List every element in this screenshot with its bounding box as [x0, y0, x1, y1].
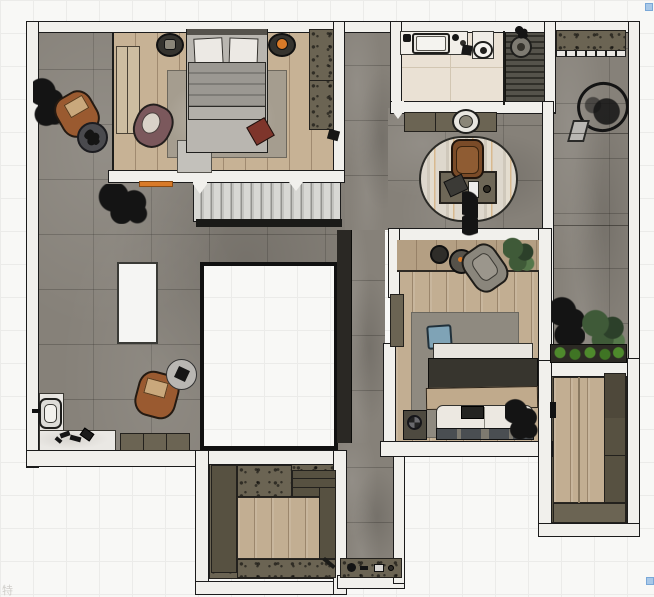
flower-planter	[550, 344, 627, 363]
counter-item-1	[403, 34, 411, 42]
terrace-shrub-dark-icon	[552, 293, 585, 351]
void-opening	[200, 262, 338, 450]
wall-bedroom2-left-lower	[383, 343, 396, 457]
wall-bottom-left	[26, 450, 209, 467]
selection-handle-top[interactable]	[645, 3, 653, 11]
counter-item-b	[374, 564, 384, 572]
terrace-seam-2	[554, 225, 628, 226]
study-plant-icon	[462, 186, 478, 240]
toilet-valve	[32, 409, 40, 413]
closet-top-section	[237, 465, 292, 497]
laundry-door-mark	[550, 402, 556, 418]
staircase	[193, 182, 341, 222]
closet-right-column	[319, 487, 336, 559]
closet-left-column	[211, 465, 237, 573]
bedroom2-plant-icon	[503, 235, 535, 273]
wall-laundry-bottom	[538, 523, 640, 537]
watermark-text: 特	[2, 582, 13, 597]
hallway-floor-lower	[340, 443, 395, 577]
wall-closet-left	[195, 450, 209, 595]
living-sideboard	[120, 433, 190, 451]
wall-shower-right	[544, 21, 556, 113]
lamp-left-icon	[164, 39, 176, 50]
master-wardrobe-divider	[127, 47, 128, 133]
sink-drain	[480, 47, 487, 54]
side-table-plant-icon	[84, 129, 101, 146]
master-duvet	[188, 62, 266, 108]
bathtub-inner	[416, 36, 446, 51]
round-table-small	[430, 245, 449, 264]
wall-closet-bottom	[195, 581, 347, 595]
wall-master-right	[333, 21, 345, 177]
floor-plan-canvas: 特	[0, 0, 654, 597]
study-sideboard	[404, 112, 497, 132]
wall-bedroom2-bottom	[380, 441, 553, 457]
wall-closet-top	[195, 450, 347, 465]
bed2-duvet-dark	[428, 358, 538, 390]
bed2-tray	[461, 406, 484, 419]
round-basin-bowl	[459, 115, 473, 128]
closet-floor-inlay	[237, 497, 320, 559]
kettle-icon	[347, 563, 356, 572]
shower-head-center	[517, 43, 525, 51]
counter-item-c	[388, 565, 394, 571]
bedroom2-plant-2-icon	[505, 397, 539, 442]
kitchen-island	[117, 262, 158, 344]
master-duvet-fold	[188, 106, 266, 120]
selection-handle-bottom[interactable]	[646, 577, 654, 585]
closet-bottom-row	[237, 559, 336, 578]
terrace-seam-1	[554, 133, 628, 134]
hallway-tall-cabinet	[337, 230, 352, 443]
master-closet-divider	[310, 80, 333, 81]
bedroom2-wardrobe	[390, 294, 404, 347]
laundry-floor-divider	[578, 377, 580, 503]
desk-bowl	[483, 185, 491, 193]
fan-icon	[407, 415, 422, 430]
sink-faucet-icon	[461, 44, 473, 56]
laundry-cabinet-row	[553, 503, 626, 523]
wall-right-outer	[628, 21, 640, 378]
wall-laundry-left	[538, 360, 552, 537]
lamp-right-icon	[276, 38, 288, 50]
laundry-cabinet-speckled	[605, 374, 625, 418]
laundry-cabinet-line	[605, 455, 625, 456]
counter-item-a	[360, 566, 368, 570]
counter-item-2	[452, 34, 459, 41]
staircase-shadow	[196, 219, 342, 227]
wall-laundry-right	[627, 358, 640, 537]
shower-fixture-icon	[515, 26, 529, 39]
plant-2-icon	[97, 184, 153, 224]
terrace-railing	[556, 50, 626, 57]
shower-glass-line	[503, 31, 505, 105]
terrace-planter-box	[556, 30, 626, 52]
desk-chair-seat	[456, 146, 479, 174]
toilet-seat	[44, 404, 57, 423]
master-headboard	[187, 29, 267, 35]
